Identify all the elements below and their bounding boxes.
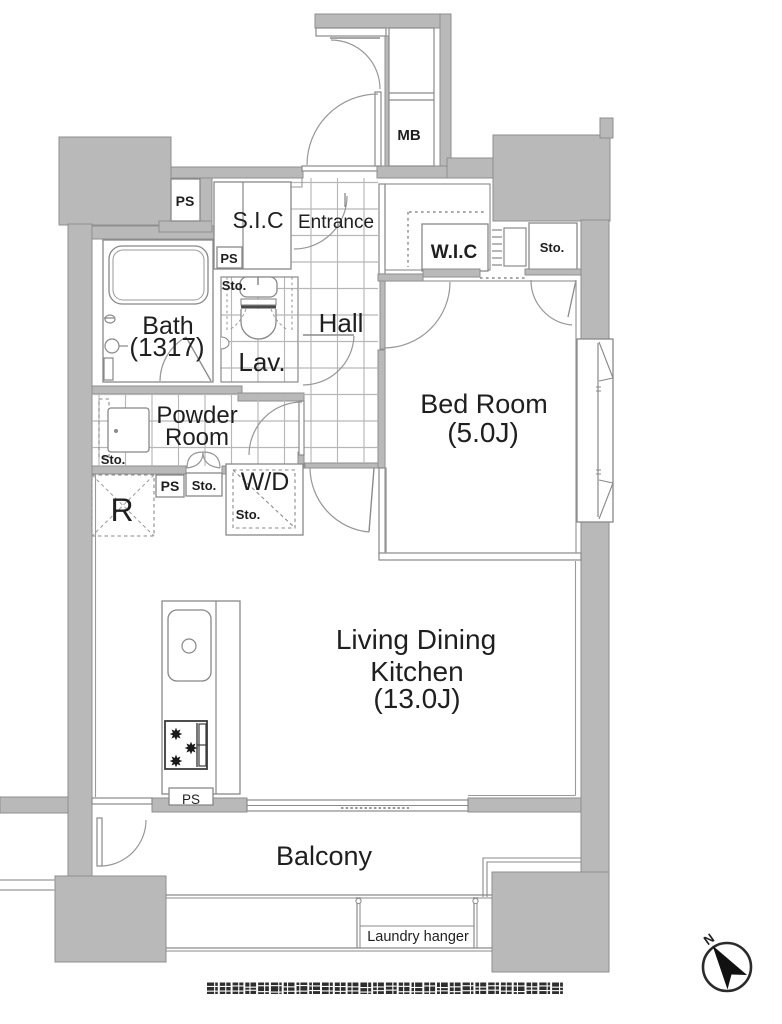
svg-text:Room: Room (165, 424, 229, 451)
svg-text:Lav.: Lav. (238, 347, 285, 377)
svg-text:PS: PS (176, 193, 195, 209)
svg-text:Sto.: Sto. (192, 478, 217, 493)
svg-text:S.I.C: S.I.C (232, 207, 283, 233)
svg-text:Entrance: Entrance (298, 212, 374, 233)
svg-text:Sto.: Sto. (236, 507, 261, 522)
svg-text:PS: PS (220, 251, 238, 266)
svg-text:W/D: W/D (241, 468, 290, 496)
svg-text:(13.0J): (13.0J) (373, 683, 460, 714)
svg-text:Hall: Hall (319, 308, 364, 338)
svg-text:(5.0J): (5.0J) (447, 417, 519, 448)
svg-text:R: R (110, 492, 133, 528)
svg-text:Sto.: Sto. (540, 240, 565, 255)
svg-text:(1317): (1317) (129, 332, 204, 362)
svg-text:Sto.: Sto. (222, 278, 247, 293)
svg-text:MB: MB (397, 127, 420, 144)
svg-text:Bed Room: Bed Room (420, 389, 548, 419)
svg-text:Living Dining: Living Dining (336, 624, 496, 655)
svg-text:W.I.C: W.I.C (431, 242, 478, 263)
svg-text:Sto.: Sto. (101, 452, 126, 467)
svg-text:PS: PS (182, 792, 200, 807)
svg-text:Laundry hanger: Laundry hanger (367, 929, 469, 945)
svg-text:Balcony: Balcony (276, 841, 373, 871)
svg-text:PS: PS (161, 478, 180, 494)
